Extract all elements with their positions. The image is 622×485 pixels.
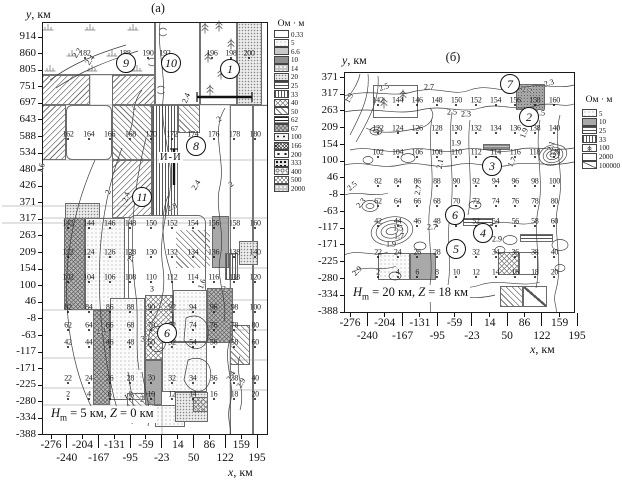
contour-value-label: 2.5 (447, 108, 457, 117)
contour-value-label: 3 (141, 335, 145, 344)
station-dot (436, 132, 438, 134)
y-tick-mark (340, 312, 344, 313)
panel-b-title: (б) (423, 50, 483, 65)
y-tick-label: 263 (0, 229, 36, 241)
y-tick-label: -63 (302, 205, 338, 217)
y-tick-mark (340, 161, 344, 162)
caption-H: H (353, 285, 362, 299)
station-dot (534, 132, 536, 134)
station-dot (475, 156, 477, 158)
station-dot (67, 256, 69, 258)
station-dot (213, 382, 215, 384)
station-dot (109, 398, 111, 400)
panel-a-caption: Hm = 5 км, Z = 0 км (49, 406, 156, 423)
y-tick-label: 697 (0, 96, 36, 108)
contour-value-label: 1.9 (386, 240, 396, 249)
anomaly-circle-5: 5 (446, 239, 466, 259)
y-tick-mark (340, 295, 344, 296)
panel-a-x-axis-title: x, км (228, 465, 253, 480)
y-tick-label: 480 (0, 163, 36, 175)
y-tick-mark (340, 211, 344, 212)
station-dot (213, 329, 215, 331)
y-tick-label: -63 (0, 329, 36, 341)
station-dot (377, 185, 379, 187)
y-tick-mark (38, 53, 42, 54)
station-dot (67, 227, 69, 229)
caption-mid: = 5 км, (67, 406, 110, 420)
y-tick-label: -334 (302, 288, 338, 300)
station-dot (67, 311, 69, 313)
station-dot (192, 227, 194, 229)
y-tick-mark (340, 94, 344, 95)
station-dot (213, 311, 215, 313)
y-tick-mark (38, 219, 42, 220)
station-dot (213, 346, 215, 348)
anomaly-circle-6: 6 (445, 205, 465, 225)
station-dot (171, 398, 173, 400)
station-dot (88, 281, 90, 283)
station-dot (475, 276, 477, 278)
y-tick-label: -117 (0, 345, 36, 357)
y-tick-label: 588 (0, 130, 36, 142)
station-dot (192, 398, 194, 400)
panel-b-x-axis-title: x, км (530, 342, 555, 357)
station-dot (67, 281, 69, 283)
y-tick-label: 534 (0, 146, 36, 158)
y-tick-label: 371 (302, 71, 338, 83)
station-dot (109, 382, 111, 384)
station-dot (88, 311, 90, 313)
station-dot (495, 256, 497, 258)
x-tick-mark (437, 313, 438, 326)
y-tick-mark (38, 434, 42, 435)
station-dot (109, 281, 111, 283)
panel-a-title: (а) (128, 1, 188, 16)
station-dot (67, 138, 69, 140)
x-tick-mark (471, 313, 472, 326)
x-tick-mark (367, 313, 368, 326)
y-tick-label: -8 (302, 188, 338, 200)
station-dot (495, 225, 497, 227)
anomaly-circle-6: 6 (157, 323, 177, 343)
contour-value-label: 2.1 (435, 158, 446, 169)
x-tick-mark (402, 313, 403, 326)
contour-value-label: 2.9 (492, 235, 502, 244)
x-tick-mark (130, 435, 131, 448)
station-dot (109, 329, 111, 331)
station-dot (88, 138, 90, 140)
x-tick-mark (541, 313, 542, 326)
station-dot (147, 57, 149, 59)
y-tick-label: 371 (0, 196, 36, 208)
station-dot (213, 281, 215, 283)
station-dot (377, 156, 379, 158)
station-dot (211, 57, 213, 59)
station-dot (88, 346, 90, 348)
station-dot (192, 311, 194, 313)
y-tick-mark (340, 177, 344, 178)
station-dot (397, 185, 399, 187)
panel-b-caption: Hm = 20 км, Z = 18 км (351, 285, 470, 302)
y-tick-label: 914 (0, 30, 36, 42)
anomaly-circle-1: 1 (220, 59, 240, 79)
station-dot (377, 276, 379, 278)
station-dot (397, 276, 399, 278)
y-tick-mark (38, 86, 42, 87)
anomaly-circle-9: 9 (116, 53, 136, 73)
y-tick-mark (38, 269, 42, 270)
y-tick-mark (38, 352, 42, 353)
station-dot (475, 104, 477, 106)
panel-b-legend-title: Ом · м (576, 95, 622, 105)
station-dot (534, 225, 536, 227)
y-tick-mark (38, 235, 42, 236)
station-dot (88, 398, 90, 400)
y-tick-label: 643 (0, 113, 36, 125)
y-tick-label: -8 (0, 312, 36, 324)
station-dot (171, 256, 173, 258)
station-dot (88, 256, 90, 258)
y-tick-label: -388 (302, 305, 338, 317)
station-dot (171, 138, 173, 140)
contour-value-label: 2.4 (95, 326, 106, 337)
station-dot (534, 205, 536, 207)
y-tick-mark (38, 302, 42, 303)
station-dot (397, 132, 399, 134)
caption-m-sub: m (362, 292, 369, 302)
contour-value-label: 2 (170, 306, 174, 315)
x-tick-mark (98, 435, 99, 448)
x-tick-mark (507, 313, 508, 326)
anomaly-circle-10: 10 (161, 53, 181, 73)
y-tick-mark (38, 368, 42, 369)
contour-value-label: 2.5 (522, 85, 532, 94)
caption-end: = 18 км (425, 285, 468, 299)
station-dot (436, 104, 438, 106)
caption-m-sub: m (60, 413, 67, 423)
y-axis-unit: , км (31, 7, 50, 21)
y-tick-mark (38, 202, 42, 203)
y-tick-mark (340, 127, 344, 128)
y-tick-label: 209 (0, 246, 36, 258)
y-tick-mark (340, 278, 344, 279)
profile-marker-bars (170, 92, 252, 185)
x-axis-unit: , км (233, 465, 252, 479)
y-tick-mark (38, 385, 42, 386)
station-dot (495, 104, 497, 106)
contour-value-label: 2 (140, 395, 144, 404)
station-dot (171, 281, 173, 283)
station-dot (192, 382, 194, 384)
y-tick-label: 209 (302, 121, 338, 133)
station-dot (248, 57, 250, 59)
contour-value-label: 3 (148, 373, 152, 382)
y-tick-label: 154 (0, 262, 36, 274)
y-tick-mark (38, 252, 42, 253)
x-tick-mark (225, 435, 226, 448)
y-tick-mark (340, 110, 344, 111)
contour-value-label: 2.7 (413, 184, 424, 195)
panel-a-y-axis-title: у, км (26, 7, 51, 22)
contour-value-label: 2.7 (427, 223, 437, 232)
y-tick-label: 426 (0, 179, 36, 191)
caption-mid: = 20 км, (369, 285, 418, 299)
y-tick-label: 805 (0, 63, 36, 75)
station-dot (397, 104, 399, 106)
x-tick-label: 159 (538, 317, 582, 329)
y-tick-label: 100 (302, 154, 338, 166)
station-dot (495, 276, 497, 278)
y-tick-mark (38, 318, 42, 319)
y-tick-label: -171 (302, 238, 338, 250)
y-tick-mark (340, 261, 344, 262)
station-dot (534, 276, 536, 278)
y-tick-mark (340, 228, 344, 229)
y-tick-mark (38, 153, 42, 154)
station-dot (88, 227, 90, 229)
anomaly-circle-4: 4 (473, 223, 493, 243)
station-dot (109, 311, 111, 313)
station-dot (377, 132, 379, 134)
station-dot (495, 205, 497, 207)
y-tick-mark (38, 70, 42, 71)
contour-value-label: 2 (222, 285, 226, 294)
anomaly-circle-2: 2 (519, 107, 539, 127)
y-tick-label: 100 (0, 279, 36, 291)
y-tick-label: -334 (0, 411, 36, 423)
station-dot (67, 398, 69, 400)
anomaly-circle-3: 3 (482, 156, 502, 176)
station-dot (534, 256, 536, 258)
station-dot (88, 329, 90, 331)
station-dot (88, 382, 90, 384)
contour-value-label: 2.3 (461, 110, 471, 119)
panel-a-legend-title: Ом · м (268, 19, 314, 29)
x-tick-mark (161, 435, 162, 448)
station-dot (534, 185, 536, 187)
x-tick-mark (193, 435, 194, 448)
station-dot (397, 256, 399, 258)
station-dot (436, 205, 438, 207)
station-dot (67, 329, 69, 331)
panel-b-y-axis-title: у, км (342, 53, 367, 68)
station-dot (213, 256, 215, 258)
station-dot (436, 256, 438, 258)
contour-value-label: 2.7 (424, 83, 434, 92)
y-tick-label: 317 (302, 87, 338, 99)
station-dot (397, 156, 399, 158)
y-axis-unit: , км (347, 53, 366, 67)
station-dot (377, 256, 379, 258)
y-tick-mark (340, 144, 344, 145)
station-dot (436, 185, 438, 187)
station-dot (495, 185, 497, 187)
y-tick-mark (38, 335, 42, 336)
anomaly-circle-8: 8 (186, 136, 206, 156)
station-dot (213, 138, 215, 140)
station-dot (67, 346, 69, 348)
y-tick-mark (38, 186, 42, 187)
y-tick-mark (340, 244, 344, 245)
y-tick-mark (340, 194, 344, 195)
x-tick-label: 195 (235, 452, 279, 464)
y-tick-label: 154 (302, 138, 338, 150)
y-tick-mark (38, 401, 42, 402)
y-tick-label: -280 (302, 272, 338, 284)
station-dot (192, 329, 194, 331)
y-tick-label: -225 (0, 378, 36, 390)
profile-label: И-И (159, 152, 183, 163)
y-tick-mark (38, 285, 42, 286)
y-tick-label: 751 (0, 80, 36, 92)
station-dot (436, 276, 438, 278)
station-dot (109, 227, 111, 229)
station-dot (67, 382, 69, 384)
caption-H: H (51, 406, 60, 420)
y-tick-label: 860 (0, 47, 36, 59)
caption-Z: Z (110, 406, 117, 420)
y-tick-mark (38, 119, 42, 120)
y-tick-label: 317 (0, 212, 36, 224)
station-dot (213, 227, 215, 229)
y-tick-label: 46 (0, 295, 36, 307)
station-dot (109, 256, 111, 258)
station-dot (534, 156, 536, 158)
y-tick-label: -117 (302, 221, 338, 233)
station-dot (475, 205, 477, 207)
station-dot (475, 256, 477, 258)
y-tick-label: 46 (302, 171, 338, 183)
x-tick-mark (257, 435, 258, 448)
y-tick-mark (38, 136, 42, 137)
y-tick-mark (38, 103, 42, 104)
anomaly-circle-11: 11 (132, 187, 152, 207)
station-dot (171, 382, 173, 384)
station-dot (377, 104, 379, 106)
contour-value-label: 3 (150, 285, 154, 294)
y-tick-label: -225 (302, 255, 338, 267)
station-dot (109, 346, 111, 348)
station-dot (534, 104, 536, 106)
anomaly-circle-7: 7 (500, 74, 520, 94)
station-dot (171, 346, 173, 348)
y-tick-label: 263 (302, 104, 338, 116)
station-dot (397, 205, 399, 207)
contour-value-label: 1.9 (451, 139, 461, 148)
station-dot (192, 281, 194, 283)
station-dot (377, 205, 379, 207)
station-dot (171, 227, 173, 229)
station-dot (192, 346, 194, 348)
x-tick-mark (577, 313, 578, 326)
x-tick-mark (66, 435, 67, 448)
station-dot (377, 225, 379, 227)
y-tick-mark (38, 418, 42, 419)
x-axis-unit: , км (535, 342, 554, 356)
station-dot (475, 185, 477, 187)
station-dot (213, 398, 215, 400)
y-tick-mark (38, 37, 42, 38)
station-dot (192, 256, 194, 258)
station-dot (475, 132, 477, 134)
station-dot (495, 132, 497, 134)
station-dot (109, 138, 111, 140)
y-tick-label: -280 (0, 395, 36, 407)
figure-resistivity-maps: (а) (б) у, км у, км x, км x, км Ом · м О… (0, 0, 622, 485)
y-tick-mark (340, 77, 344, 78)
caption-end: = 0 км (117, 406, 154, 420)
y-tick-label: -171 (0, 362, 36, 374)
x-tick-label: 195 (555, 330, 599, 342)
